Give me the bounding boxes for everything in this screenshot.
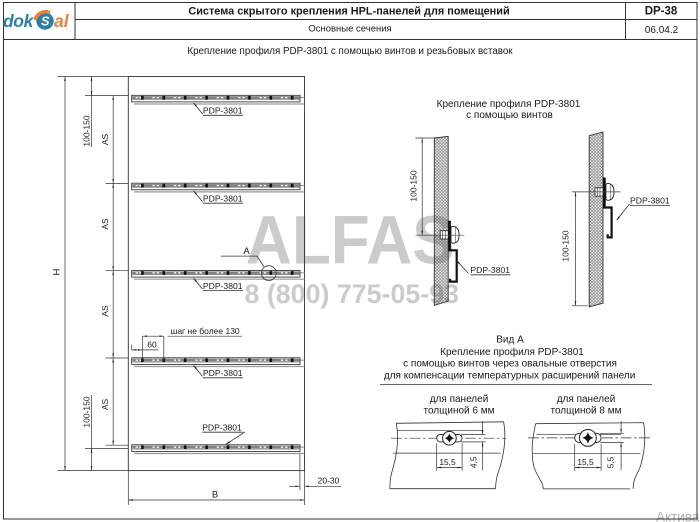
svg-text:Актива: Актива: [656, 509, 700, 522]
svg-text:PDP-3801: PDP-3801: [630, 196, 670, 206]
svg-text:AS: AS: [100, 134, 110, 146]
svg-text:20-30: 20-30: [318, 476, 340, 486]
svg-text:Вид A: Вид A: [496, 335, 524, 346]
svg-text:15,5: 15,5: [577, 457, 594, 467]
svg-text:PDP-3801: PDP-3801: [203, 106, 243, 116]
svg-text:с помощью винтов: с помощью винтов: [466, 110, 553, 121]
svg-text:для панелей: для панелей: [430, 394, 489, 405]
svg-text:06.04.2: 06.04.2: [645, 25, 679, 36]
svg-text:dok: dok: [3, 11, 35, 31]
svg-text:AS: AS: [100, 399, 110, 411]
svg-text:для компенсации температурных: для компенсации температурных расширений…: [384, 370, 635, 381]
svg-text:100-150: 100-150: [82, 115, 92, 146]
svg-text:15,5: 15,5: [439, 457, 456, 467]
svg-text:A: A: [243, 246, 250, 257]
svg-text:толщиной 8 мм: толщиной 8 мм: [551, 406, 622, 417]
svg-text:S: S: [41, 15, 50, 29]
svg-text:AS: AS: [100, 218, 110, 230]
svg-text:PDP-3801: PDP-3801: [470, 265, 510, 275]
svg-text:Крепление профиля PDP-3801: Крепление профиля PDP-3801: [440, 346, 584, 358]
svg-text:толщиной 6 мм: толщиной 6 мм: [424, 406, 495, 417]
svg-text:100-150: 100-150: [561, 230, 571, 261]
svg-text:100-150: 100-150: [409, 170, 419, 201]
svg-text:Крепление профиля PDP-3801 с п: Крепление профиля PDP-3801 с помощью вин…: [187, 46, 513, 57]
svg-text:8 (800) 775-05-93: 8 (800) 775-05-93: [245, 279, 460, 309]
svg-text:PDP-3801: PDP-3801: [203, 281, 243, 291]
svg-text:B: B: [212, 490, 218, 501]
svg-text:AS: AS: [100, 305, 110, 317]
svg-text:с помощью винтов через овальны: с помощью винтов через овальные отверсти…: [403, 359, 617, 370]
svg-text:al: al: [54, 11, 70, 31]
svg-text:PDP-3801: PDP-3801: [202, 423, 242, 433]
svg-text:DP-38: DP-38: [645, 5, 678, 17]
svg-text:PDP-3801: PDP-3801: [203, 194, 243, 204]
svg-text:60: 60: [147, 340, 157, 350]
svg-text:4,5: 4,5: [468, 456, 478, 468]
svg-text:100-150: 100-150: [82, 396, 92, 427]
svg-text:Крепление профиля PDP-3801: Крепление профиля PDP-3801: [437, 98, 581, 110]
svg-text:Система скрытого крепления HPL: Система скрытого крепления HPL-панелей д…: [188, 5, 509, 17]
svg-text:шаг не более 130: шаг не более 130: [171, 326, 240, 336]
svg-text:5,5: 5,5: [606, 456, 616, 468]
svg-text:PDP-3801: PDP-3801: [203, 368, 243, 378]
svg-text:H: H: [52, 268, 63, 275]
svg-text:ALFAS: ALFAS: [246, 202, 455, 279]
svg-text:Основные сечения: Основные сечения: [308, 23, 391, 34]
svg-text:для панелей: для панелей: [557, 394, 616, 405]
